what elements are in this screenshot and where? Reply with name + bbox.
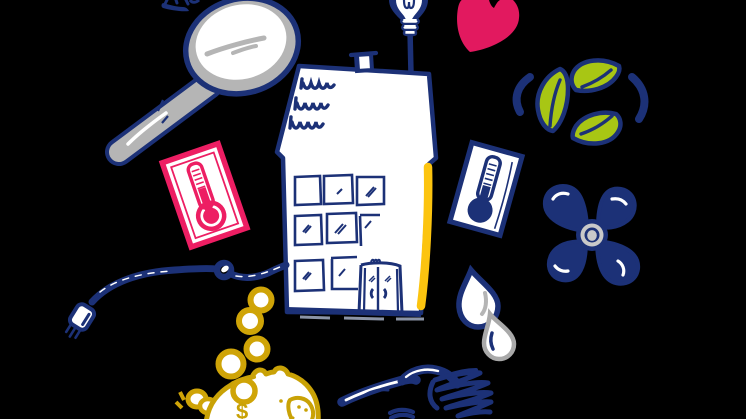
svg-text:$: $ (236, 399, 248, 419)
